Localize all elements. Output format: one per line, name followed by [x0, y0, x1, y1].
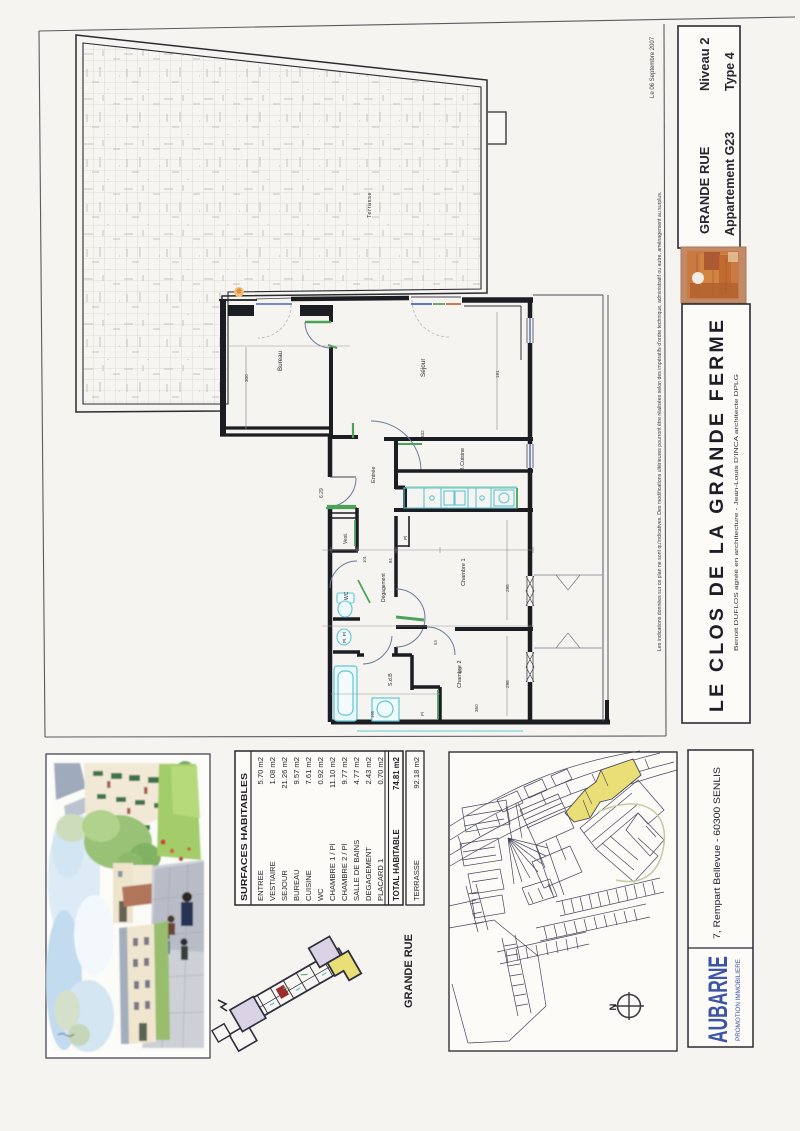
svg-text:CHAMBRE 2 / Pl: CHAMBRE 2 / Pl [340, 843, 349, 901]
svg-text:Appartement G23: Appartement G23 [723, 132, 737, 236]
svg-text:300: 300 [244, 374, 249, 382]
svg-text:AUBARNE: AUBARNE [703, 956, 733, 1043]
svg-text:GRANDE RUE: GRANDE RUE [697, 146, 712, 234]
svg-text:2.43 m2: 2.43 m2 [364, 757, 373, 784]
svg-text:DEGAGEMENT: DEGAGEMENT [364, 847, 373, 901]
svg-text:84: 84 [388, 558, 393, 563]
svg-text:PLACARD 1: PLACARD 1 [376, 859, 385, 901]
svg-text:BUREAU: BUREAU [292, 869, 301, 901]
svg-text:9.77 m2: 9.77 m2 [340, 757, 349, 784]
svg-text:7, Rempart Bellevue - 60300 SE: 7, Rempart Bellevue - 60300 SENLIS [712, 767, 722, 939]
svg-text:Séjour: Séjour [420, 358, 427, 377]
svg-text:N: N [608, 1004, 619, 1011]
svg-text:195: 195 [370, 710, 375, 718]
svg-text:Chambre 1: Chambre 1 [461, 558, 467, 586]
svg-text:Bureau: Bureau [277, 350, 284, 371]
svg-text:74.81 m2: 74.81 m2 [392, 756, 401, 790]
svg-text:Dégagement: Dégagement [381, 573, 387, 602]
svg-text:Le 06 Septembre 2007: Le 06 Septembre 2007 [650, 36, 656, 98]
svg-text:Benoit DUFLOS agréé en archit: Benoit DUFLOS agréé en architecture - Je… [734, 373, 740, 651]
svg-text:VESTIAIRE: VESTIAIRE [268, 861, 277, 901]
svg-text:Chambre 2: Chambre 2 [457, 660, 463, 688]
svg-text:Terrasse: Terrasse [367, 192, 373, 218]
svg-text:298: 298 [505, 680, 510, 688]
svg-text:PROMOTION IMMOBILIERE: PROMOTION IMMOBILIERE [736, 959, 742, 1041]
svg-text:TOTAL HABITABLE: TOTAL HABITABLE [392, 829, 401, 901]
svg-text:295: 295 [505, 584, 510, 592]
svg-text:Les indications données sur ce: Les indications données sur ce plan ne s… [657, 192, 663, 651]
svg-text:21.26 m2: 21.26 m2 [280, 757, 289, 789]
svg-text:101: 101 [362, 555, 367, 563]
svg-text:92.18 m2: 92.18 m2 [412, 757, 421, 789]
svg-text:Type 4: Type 4 [723, 52, 737, 91]
svg-text:S.d.B: S.d.B [388, 673, 394, 686]
svg-text:0.70 m2: 0.70 m2 [376, 757, 385, 784]
svg-text:Niveau 2: Niveau 2 [697, 38, 712, 91]
svg-text:SALLE DE BAINS: SALLE DE BAINS [352, 840, 361, 901]
svg-text:4.77 m2: 4.77 m2 [352, 757, 361, 784]
svg-text:B.Cuisine: B.Cuisine [460, 448, 466, 471]
svg-text:Entrée: Entrée [371, 467, 377, 483]
svg-text:360: 360 [474, 704, 479, 712]
svg-text:9.57 m2: 9.57 m2 [292, 757, 301, 784]
svg-text:TERRASSE: TERRASSE [412, 860, 421, 901]
svg-text:0.92 m2: 0.92 m2 [316, 757, 325, 784]
svg-text:Pl: Pl [403, 536, 408, 540]
svg-text:191: 191 [495, 370, 500, 378]
svg-text:5.70 m2: 5.70 m2 [256, 757, 265, 784]
svg-text:332: 332 [420, 430, 425, 438]
svg-text:GRANDE RUE: GRANDE RUE [403, 934, 415, 1008]
svg-text:7.61 m2: 7.61 m2 [304, 757, 313, 784]
svg-text:11.10 m2: 11.10 m2 [328, 757, 337, 788]
svg-text:SEJOUR: SEJOUR [280, 870, 289, 901]
svg-text:CHAMBRE 1 / Pl: CHAMBRE 1 / Pl [328, 843, 337, 901]
svg-text:WC: WC [316, 888, 325, 901]
svg-text:CUISINE: CUISINE [304, 870, 313, 901]
svg-text:Pl. Pl: Pl. Pl [342, 632, 347, 643]
svg-text:ENTREE: ENTREE [256, 870, 265, 901]
svg-text:SURFACES HABITABLES: SURFACES HABITABLES [239, 772, 249, 901]
svg-text:Vest.: Vest. [343, 533, 349, 544]
svg-text:53: 53 [433, 640, 438, 645]
svg-text:WC: WC [344, 591, 350, 600]
svg-text:Pl: Pl [420, 712, 425, 716]
svg-text:1.08 m2: 1.08 m2 [268, 757, 277, 784]
svg-text:6.29: 6.29 [319, 488, 325, 498]
